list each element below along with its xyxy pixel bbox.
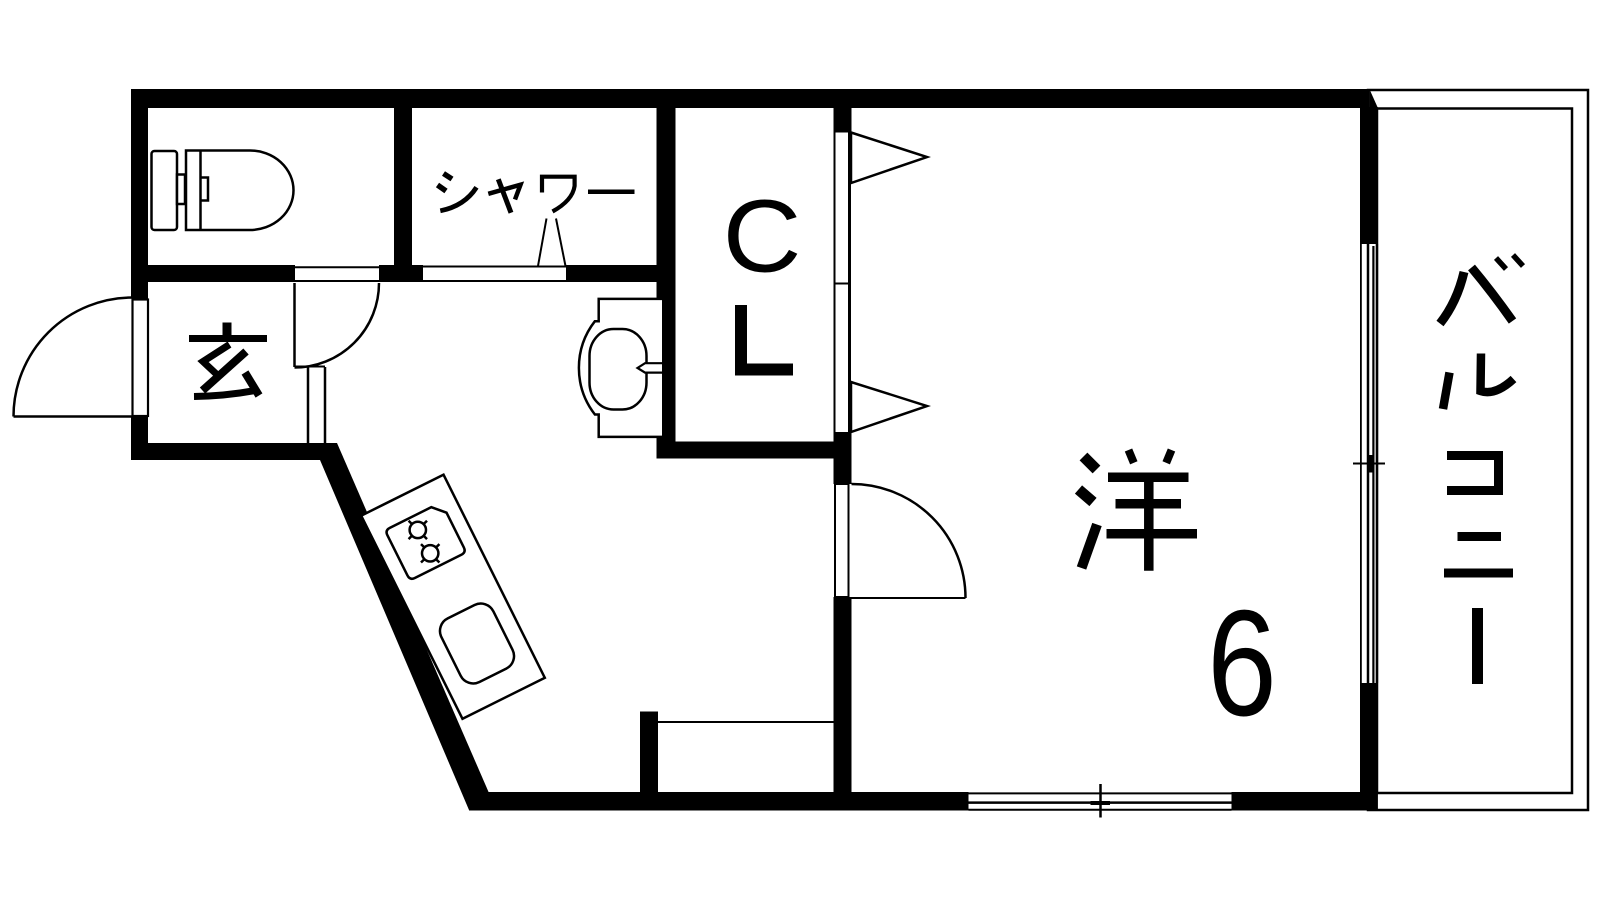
svg-text:C: C: [723, 179, 802, 294]
svg-text:6: 6: [1207, 579, 1277, 748]
